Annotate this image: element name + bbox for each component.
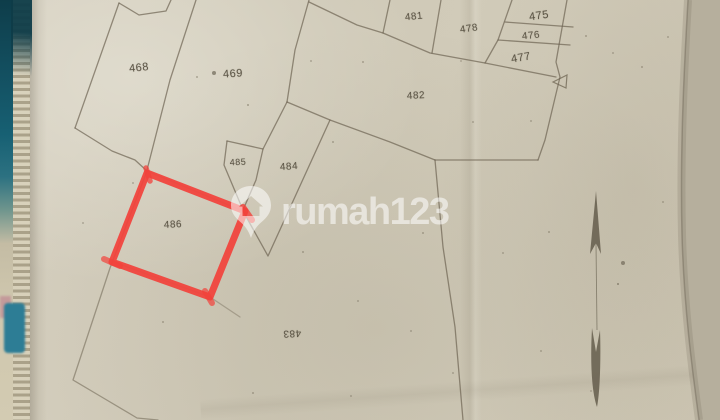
parcel-label-483: 483 <box>283 327 302 339</box>
parcel-label-468: 468 <box>128 61 149 75</box>
binding-blue-patch <box>4 303 25 353</box>
paper-right-edge <box>681 0 720 420</box>
parcel-label-469: 469 <box>223 67 244 80</box>
binding-top-shade <box>11 0 32 78</box>
rumah123-pin-house-icon <box>230 185 272 239</box>
watermark-text: rumah123 <box>281 193 449 231</box>
parcel-label-484: 484 <box>280 161 299 173</box>
parcel-label-476: 476 <box>521 30 540 43</box>
parcel-label-486: 486 <box>164 219 183 231</box>
parcel-label-481: 481 <box>404 11 423 24</box>
parcel-label-482: 482 <box>407 90 426 102</box>
north-arrow-icon <box>590 191 601 407</box>
listing-photo-site-plan: 468469481478475476477482485484486483 rum… <box>0 0 720 420</box>
watermark: rumah123 <box>230 183 449 241</box>
parcel-label-485: 485 <box>229 157 246 168</box>
